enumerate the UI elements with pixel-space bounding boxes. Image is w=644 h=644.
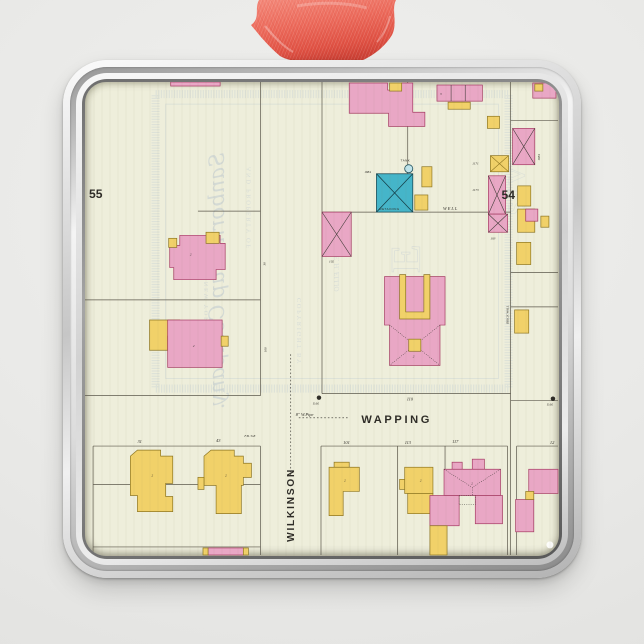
date-label: 1884 bbox=[364, 170, 371, 174]
house-number: 12 bbox=[550, 440, 555, 445]
fire-box-label: F.B. 5x8 bbox=[243, 434, 255, 438]
house-yellow bbox=[130, 450, 172, 512]
tank-label: TANK bbox=[401, 159, 411, 163]
building-yellow bbox=[487, 116, 499, 128]
lot-dimension: 100 bbox=[264, 347, 268, 352]
building-yellow bbox=[515, 310, 529, 333]
building-yellow bbox=[535, 84, 543, 91]
ribbon-shape bbox=[251, 0, 396, 64]
watermark-copyright: COPYRIGHT BY bbox=[296, 298, 303, 365]
house-pink-wing bbox=[430, 495, 459, 525]
house-pink bbox=[516, 500, 534, 532]
hydrant-dot bbox=[317, 395, 321, 399]
building-pink bbox=[171, 82, 220, 86]
building-yellow bbox=[390, 83, 402, 91]
water-pipe-label: 8" W.Pipe bbox=[296, 412, 314, 417]
house-yellow bbox=[408, 493, 433, 513]
building-yellow bbox=[409, 339, 421, 351]
hydrant-label: D.H. bbox=[546, 403, 554, 407]
house-pink-wing bbox=[475, 495, 502, 523]
house-yellow bbox=[204, 450, 251, 514]
building-pink bbox=[208, 548, 243, 555]
bottom-right-buildings bbox=[329, 459, 558, 555]
brick-wall-label: BRICK WALL bbox=[506, 305, 510, 324]
building-yellow bbox=[169, 238, 177, 247]
building-yellow bbox=[198, 477, 204, 489]
building-pink-u-shaped bbox=[385, 277, 446, 366]
lot-dimension: 30 bbox=[263, 262, 267, 266]
house-yellow bbox=[329, 467, 359, 515]
building-yellow bbox=[448, 102, 470, 109]
building-yellow bbox=[518, 186, 531, 206]
teal-building-label: RETAINING bbox=[379, 207, 399, 211]
building-yellow bbox=[203, 548, 208, 555]
stable-number: 1884 bbox=[537, 154, 541, 161]
house-number: 110 bbox=[407, 397, 414, 402]
reflection-speck bbox=[546, 541, 553, 548]
map-drawing: Sanborn Map Company. AND PROPERTY OF COP… bbox=[85, 82, 559, 556]
block-number-55: 55 bbox=[89, 187, 103, 201]
house-number: 102 bbox=[329, 260, 334, 264]
building-yellow bbox=[517, 242, 531, 264]
building-yellow bbox=[430, 526, 447, 555]
house-number: 117 bbox=[452, 439, 459, 444]
house-yellow bbox=[405, 467, 433, 493]
porch-dashed bbox=[459, 495, 475, 504]
frame-inner-lip: Sanborn Map Company. AND PROPERTY OF COP… bbox=[82, 79, 562, 559]
stable-number: 1173 bbox=[472, 188, 479, 192]
street-name-wilkinson: WILKINSON bbox=[286, 468, 297, 542]
house-number: 103 bbox=[490, 236, 495, 240]
hydrant-label: D.H. bbox=[312, 402, 320, 406]
building-yellow bbox=[206, 232, 219, 243]
house-pink bbox=[529, 469, 558, 493]
building-pink bbox=[526, 209, 538, 221]
stable-number: 1171 bbox=[472, 162, 479, 166]
house-number: 31 bbox=[137, 439, 141, 444]
house-pink bbox=[472, 459, 484, 470]
hydrant-dot bbox=[551, 396, 555, 400]
bottom-left-buildings bbox=[130, 450, 251, 555]
building-yellow bbox=[541, 216, 549, 227]
building-pink bbox=[168, 320, 222, 367]
building-yellow bbox=[415, 195, 428, 210]
house-number: 113 bbox=[405, 440, 412, 445]
well-label: WELL bbox=[443, 206, 458, 211]
sanborn-map-print: Sanborn Map Company. AND PROPERTY OF COP… bbox=[85, 82, 559, 556]
building-yellow bbox=[526, 491, 534, 499]
watermark-property: AND PROPERTY OF bbox=[245, 167, 252, 250]
frame-band-3: Sanborn Map Company. AND PROPERTY OF COP… bbox=[76, 73, 568, 565]
product-photo-background: Sanborn Map Company. AND PROPERTY OF COP… bbox=[0, 0, 644, 644]
building-pink bbox=[437, 85, 482, 101]
frame-band-2: Sanborn Map Company. AND PROPERTY OF COP… bbox=[70, 67, 574, 571]
street-name-wapping: WAPPING bbox=[361, 414, 432, 426]
metal-ornament-frame: Sanborn Map Company. AND PROPERTY OF COP… bbox=[63, 60, 581, 578]
watermark-agent: E. H. ELLIO bbox=[333, 254, 341, 291]
house-number: 101 bbox=[343, 440, 350, 445]
building-yellow bbox=[243, 548, 248, 555]
building-yellow bbox=[221, 336, 228, 346]
house-number: 43 bbox=[216, 438, 221, 443]
block-number-54: 54 bbox=[502, 188, 516, 202]
water-tank bbox=[405, 165, 413, 173]
building-yellow bbox=[422, 167, 432, 187]
